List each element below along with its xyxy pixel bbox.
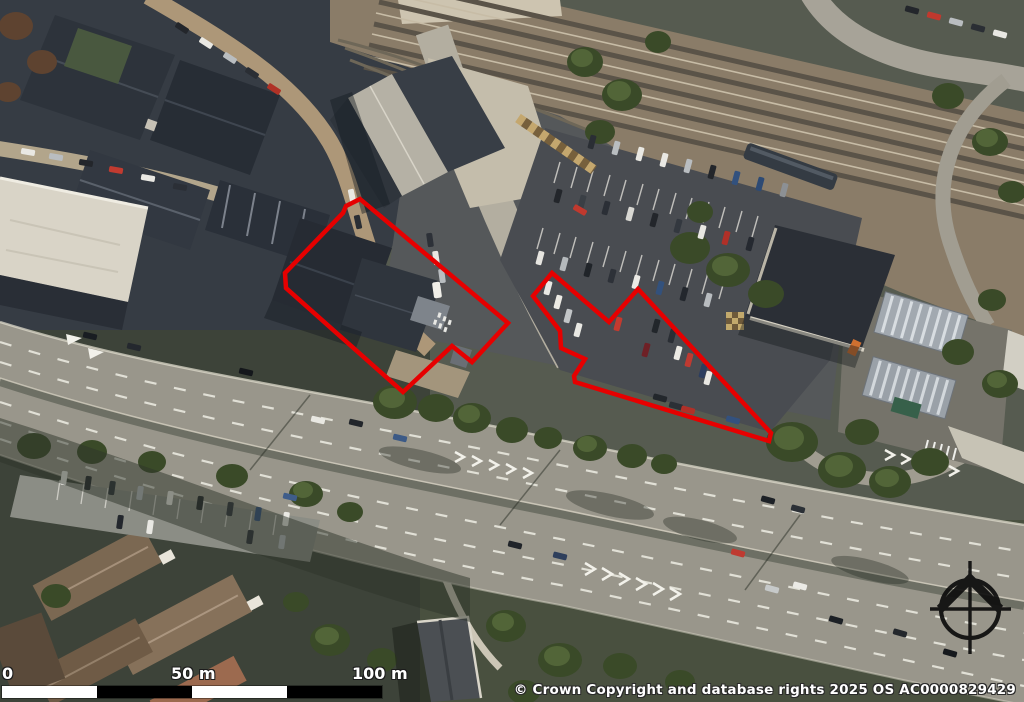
scale-segment xyxy=(192,686,287,698)
scale-label-0: 0 xyxy=(2,666,13,682)
copyright-text: © Crown Copyright and database rights 20… xyxy=(514,682,1016,698)
scale-label-100m: 100 m xyxy=(352,666,408,682)
scale-segment xyxy=(97,686,192,698)
aerial-map-image: 0 50 m 100 m © Crown Copyright and datab… xyxy=(0,0,1024,702)
scale-segment xyxy=(287,686,382,698)
scale-bar-segments xyxy=(2,686,382,698)
scale-segment xyxy=(2,686,97,698)
north-arrow-icon xyxy=(928,556,1020,660)
scale-label-50m: 50 m xyxy=(171,666,216,682)
aerial-photo xyxy=(0,0,1024,702)
